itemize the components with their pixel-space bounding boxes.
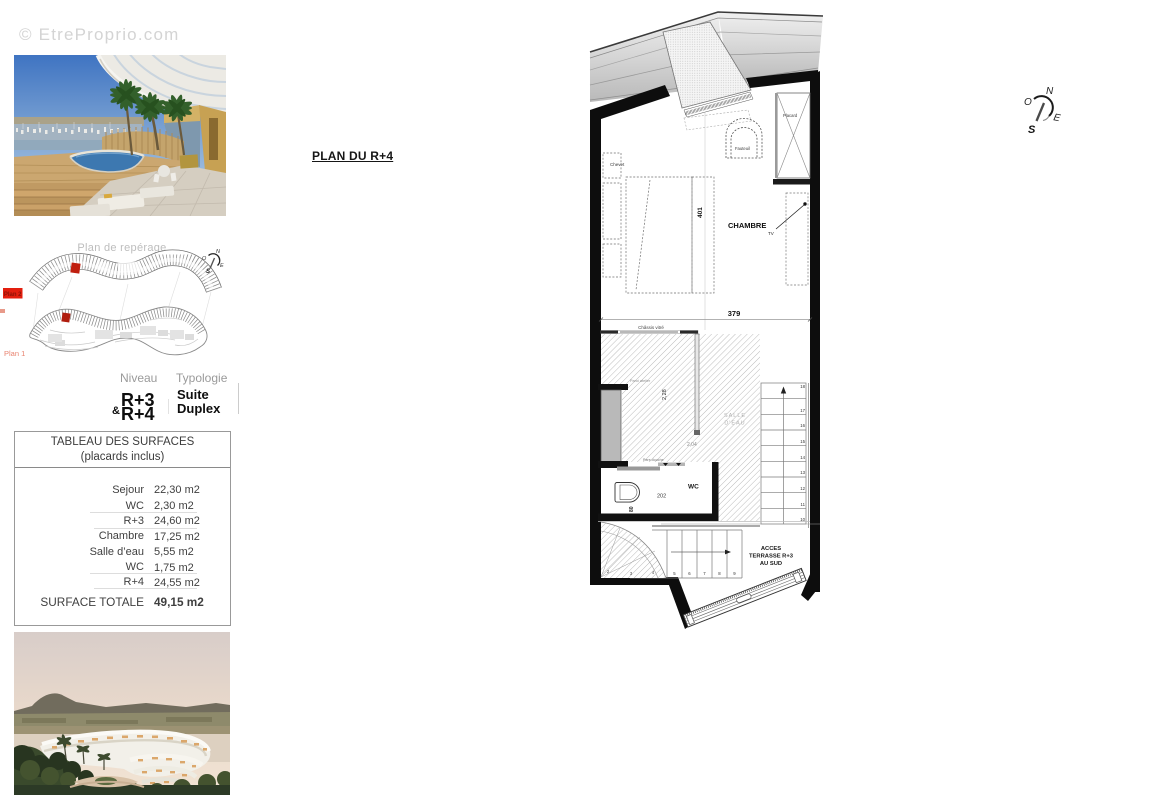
- svg-text:18: 18: [800, 384, 805, 389]
- svg-text:11: 11: [801, 502, 806, 507]
- svg-text:D'EAU: D'EAU: [724, 421, 745, 427]
- svg-text:SALLE: SALLE: [724, 413, 746, 419]
- svg-text:16: 16: [800, 423, 805, 428]
- svg-text:Plan 1: Plan 1: [4, 349, 25, 358]
- svg-text:7: 7: [703, 571, 706, 576]
- svg-text:AU SUD: AU SUD: [760, 561, 782, 567]
- svg-text:TV: TV: [768, 231, 774, 236]
- svg-text:Paroi atelier: Paroi atelier: [630, 379, 651, 383]
- svg-text:8: 8: [718, 571, 721, 576]
- svg-text:2,04: 2,04: [687, 442, 697, 448]
- svg-text:Châssis vitré: Châssis vitré: [638, 325, 664, 330]
- svg-text:15: 15: [800, 439, 805, 444]
- svg-text:379: 379: [728, 309, 741, 318]
- svg-text:Plan 2: Plan 2: [4, 292, 22, 298]
- svg-text:N: N: [1046, 86, 1054, 97]
- svg-text:Fauteuil: Fauteuil: [735, 146, 750, 151]
- svg-text:9: 9: [733, 571, 736, 576]
- svg-text:WC: WC: [688, 484, 699, 491]
- svg-text:Placard: Placard: [783, 113, 798, 118]
- svg-text:O: O: [1024, 97, 1032, 108]
- svg-text:Chevet: Chevet: [610, 162, 625, 167]
- svg-text:Plan de repérage: Plan de repérage: [77, 242, 166, 254]
- svg-text:2,28: 2,28: [662, 389, 668, 400]
- svg-text:CHAMBRE: CHAMBRE: [728, 221, 766, 230]
- svg-text:Pare-douche: Pare-douche: [643, 458, 664, 462]
- svg-text:12: 12: [800, 486, 805, 491]
- svg-text:6: 6: [688, 571, 691, 576]
- svg-text:80: 80: [629, 506, 635, 512]
- svg-text:13: 13: [800, 470, 805, 475]
- svg-text:202: 202: [657, 494, 666, 500]
- svg-text:ACCES: ACCES: [761, 546, 781, 552]
- svg-text:17: 17: [800, 408, 805, 413]
- svg-text:O: O: [202, 256, 207, 262]
- svg-text:TERRASSE R+3: TERRASSE R+3: [749, 554, 794, 560]
- svg-text:N: N: [216, 249, 220, 255]
- svg-text:S: S: [1028, 124, 1036, 136]
- svg-text:401: 401: [697, 207, 704, 218]
- svg-text:E: E: [1052, 112, 1061, 124]
- svg-text:S: S: [206, 269, 210, 275]
- svg-text:5: 5: [673, 571, 676, 576]
- svg-text:E: E: [220, 263, 224, 269]
- svg-text:14: 14: [800, 455, 805, 460]
